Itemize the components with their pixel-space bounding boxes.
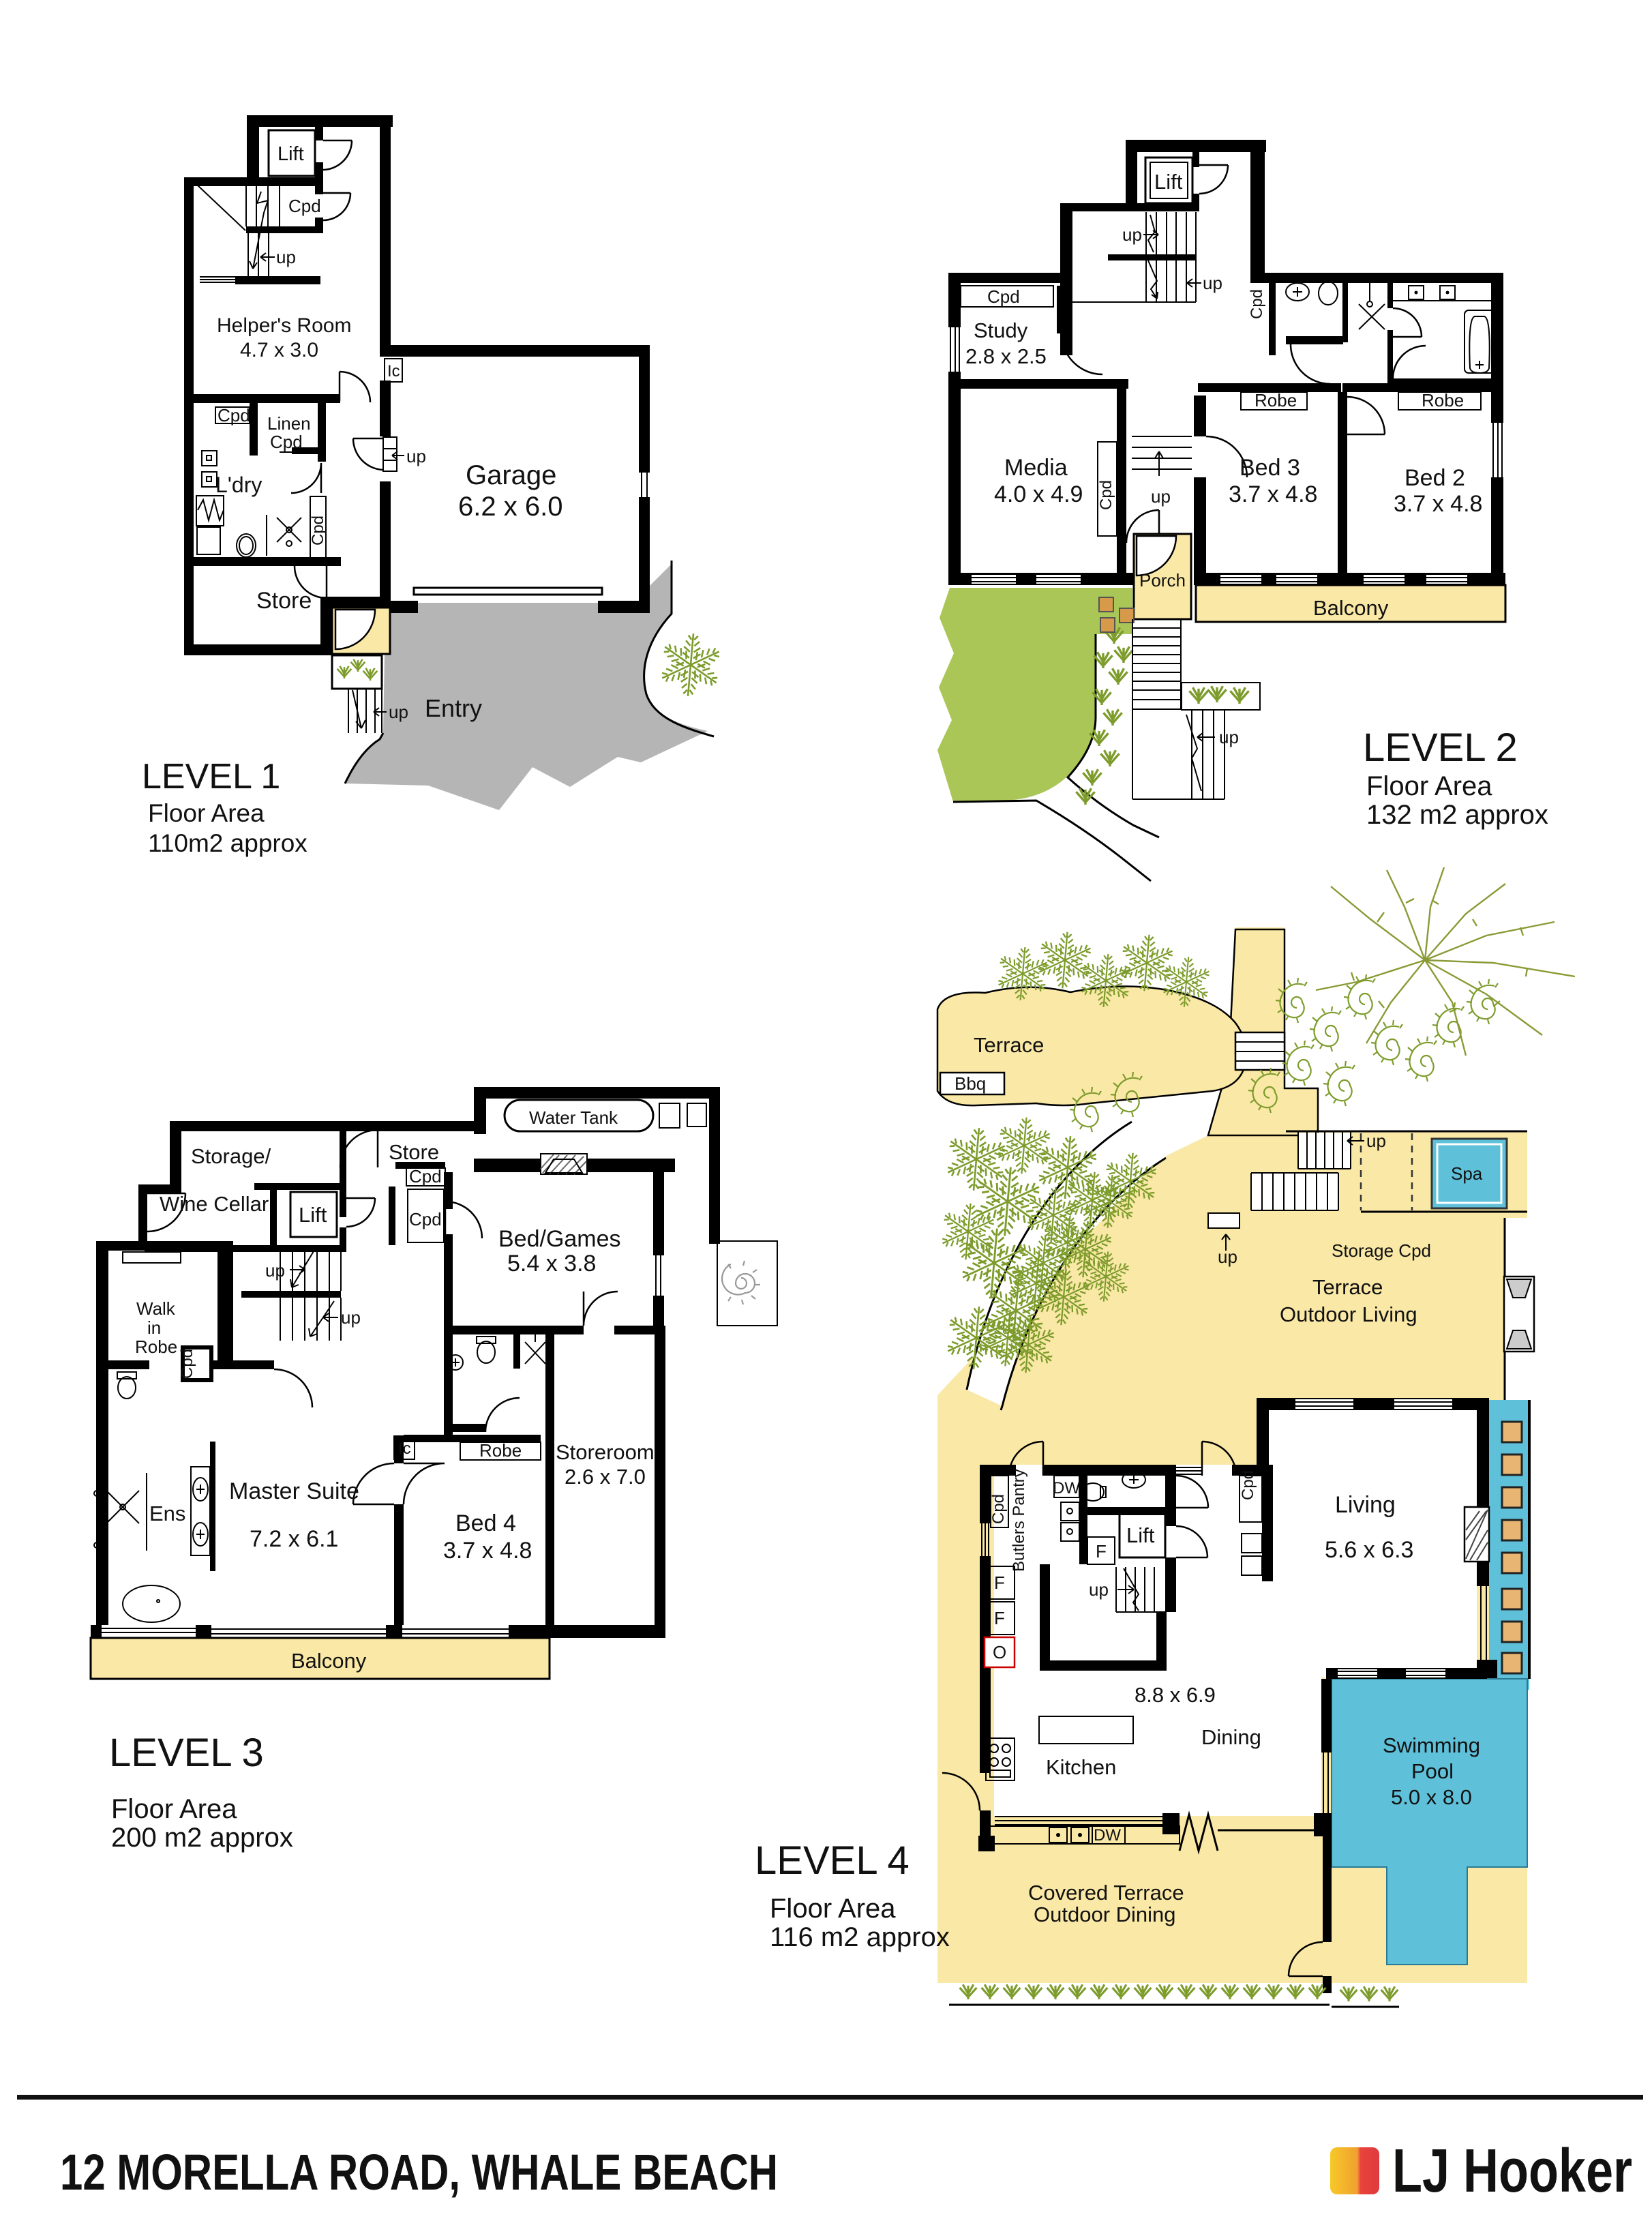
svg-text:4.7 x 3.0: 4.7 x 3.0 bbox=[240, 339, 318, 361]
svg-text:Outdoor Living: Outdoor Living bbox=[1280, 1302, 1417, 1326]
svg-text:Cpd: Cpd bbox=[409, 1166, 442, 1187]
svg-text:Bed 4: Bed 4 bbox=[455, 1510, 516, 1536]
svg-text:Ic: Ic bbox=[398, 1439, 411, 1458]
svg-text:Cpd: Cpd bbox=[1248, 289, 1266, 319]
svg-text:Robe: Robe bbox=[1255, 390, 1297, 411]
svg-text:Bed/Games: Bed/Games bbox=[498, 1226, 621, 1252]
svg-text:Master Suite: Master Suite bbox=[229, 1478, 359, 1504]
svg-text:up: up bbox=[1366, 1131, 1386, 1151]
svg-text:Bed 3: Bed 3 bbox=[1240, 455, 1300, 481]
svg-text:Robe: Robe bbox=[135, 1337, 177, 1357]
svg-text:2.6 x 7.0: 2.6 x 7.0 bbox=[565, 1465, 646, 1489]
svg-text:F: F bbox=[994, 1608, 1005, 1628]
svg-text:Lift: Lift bbox=[1154, 170, 1183, 194]
svg-text:Floor Area: Floor Area bbox=[770, 1894, 896, 1924]
svg-text:Media: Media bbox=[1004, 455, 1068, 481]
svg-text:Covered Terrace: Covered Terrace bbox=[1028, 1881, 1184, 1905]
svg-text:DW: DW bbox=[1094, 1826, 1121, 1845]
svg-text:Butlers Pantry: Butlers Pantry bbox=[1010, 1469, 1028, 1572]
svg-text:132 m2 approx: 132 m2 approx bbox=[1366, 800, 1548, 830]
svg-text:LEVEL 1: LEVEL 1 bbox=[142, 757, 280, 796]
svg-text:200 m2 approx: 200 m2 approx bbox=[111, 1823, 293, 1853]
svg-text:Balcony: Balcony bbox=[1313, 596, 1389, 620]
svg-text:Cpd: Cpd bbox=[1097, 480, 1115, 510]
svg-text:Living: Living bbox=[1335, 1492, 1396, 1518]
svg-text:Porch: Porch bbox=[1139, 570, 1186, 591]
svg-text:Dining: Dining bbox=[1201, 1725, 1261, 1749]
svg-text:3.7 x 4.8: 3.7 x 4.8 bbox=[443, 1538, 532, 1564]
svg-text:Cpd: Cpd bbox=[270, 432, 303, 452]
svg-text:Ens: Ens bbox=[149, 1502, 185, 1525]
svg-text:Water Tank: Water Tank bbox=[529, 1107, 618, 1128]
svg-text:up: up bbox=[1089, 1579, 1109, 1600]
svg-text:Storeroom: Storeroom bbox=[556, 1440, 655, 1464]
svg-text:Terrace: Terrace bbox=[974, 1033, 1044, 1057]
svg-text:Floor Area: Floor Area bbox=[111, 1794, 237, 1824]
svg-text:Storage Cpd: Storage Cpd bbox=[1332, 1240, 1431, 1261]
svg-text:Balcony: Balcony bbox=[291, 1649, 367, 1673]
svg-text:up: up bbox=[341, 1307, 361, 1328]
svg-text:Terrace: Terrace bbox=[1312, 1275, 1383, 1299]
svg-text:Bed 2: Bed 2 bbox=[1405, 465, 1465, 491]
svg-text:Lift: Lift bbox=[277, 143, 304, 165]
svg-text:Cpd: Cpd bbox=[987, 286, 1020, 307]
svg-text:up: up bbox=[265, 1260, 285, 1281]
svg-text:Spa: Spa bbox=[1451, 1163, 1483, 1184]
svg-text:up: up bbox=[1203, 273, 1222, 293]
svg-text:Pool: Pool bbox=[1411, 1759, 1454, 1783]
svg-text:Cpd: Cpd bbox=[409, 1209, 442, 1229]
svg-text:O: O bbox=[993, 1642, 1006, 1662]
svg-text:LEVEL 2: LEVEL 2 bbox=[1363, 726, 1518, 770]
svg-text:Floor Area: Floor Area bbox=[148, 799, 265, 827]
svg-text:3.7 x 4.8: 3.7 x 4.8 bbox=[1394, 491, 1482, 517]
svg-text:Floor Area: Floor Area bbox=[1366, 771, 1492, 801]
svg-text:3.7 x 4.8: 3.7 x 4.8 bbox=[1229, 481, 1317, 507]
svg-text:Bbq: Bbq bbox=[955, 1073, 986, 1094]
svg-text:LEVEL 3: LEVEL 3 bbox=[109, 1731, 264, 1775]
svg-text:LEVEL 4: LEVEL 4 bbox=[755, 1838, 910, 1883]
svg-text:Robe: Robe bbox=[479, 1440, 522, 1461]
svg-text:7.2 x 6.1: 7.2 x 6.1 bbox=[250, 1526, 338, 1552]
svg-text:Linen: Linen bbox=[267, 413, 311, 434]
svg-text:Walk: Walk bbox=[136, 1298, 176, 1319]
svg-text:up: up bbox=[1151, 486, 1171, 507]
svg-text:up: up bbox=[389, 702, 408, 722]
svg-text:Wine Cellar: Wine Cellar bbox=[160, 1192, 269, 1216]
svg-text:Store: Store bbox=[389, 1140, 439, 1164]
svg-text:Cpd: Cpd bbox=[217, 405, 250, 426]
svg-text:Ic: Ic bbox=[387, 362, 400, 381]
svg-text:4.0 x 4.9: 4.0 x 4.9 bbox=[994, 481, 1083, 507]
svg-text:2.8 x 2.5: 2.8 x 2.5 bbox=[965, 344, 1047, 368]
svg-text:Study: Study bbox=[974, 318, 1028, 342]
svg-text:5.4 x 3.8: 5.4 x 3.8 bbox=[507, 1251, 596, 1277]
svg-text:6.2 x 6.0: 6.2 x 6.0 bbox=[458, 492, 562, 522]
svg-text:Garage: Garage bbox=[466, 460, 556, 490]
svg-text:DW: DW bbox=[1053, 1479, 1080, 1497]
svg-text:LJ Hooker: LJ Hooker bbox=[1392, 2137, 1632, 2205]
svg-text:Cpd: Cpd bbox=[309, 516, 327, 546]
svg-text:in: in bbox=[147, 1317, 161, 1338]
svg-text:Cpd: Cpd bbox=[288, 196, 321, 216]
svg-text:Entry: Entry bbox=[425, 694, 482, 722]
svg-text:Outdoor Dining: Outdoor Dining bbox=[1034, 1903, 1176, 1926]
svg-text:Swimming: Swimming bbox=[1383, 1733, 1480, 1757]
svg-text:Cpd: Cpd bbox=[178, 1349, 196, 1379]
svg-text:Helper's Room: Helper's Room bbox=[217, 314, 351, 337]
svg-text:up: up bbox=[276, 247, 296, 267]
svg-text:up: up bbox=[1218, 1247, 1237, 1267]
svg-text:5.0 x 8.0: 5.0 x 8.0 bbox=[1391, 1785, 1472, 1809]
svg-text:12 MORELLA ROAD, WHALE BEACH: 12 MORELLA ROAD, WHALE BEACH bbox=[60, 2144, 778, 2200]
svg-text:Kitchen: Kitchen bbox=[1046, 1755, 1116, 1779]
svg-text:Robe: Robe bbox=[1422, 390, 1464, 411]
svg-text:110m2 approx: 110m2 approx bbox=[148, 829, 307, 857]
svg-text:5.6 x 6.3: 5.6 x 6.3 bbox=[1325, 1537, 1413, 1563]
svg-text:Cpd: Cpd bbox=[1239, 1470, 1257, 1500]
svg-text:up: up bbox=[1219, 727, 1239, 747]
svg-text:up: up bbox=[406, 446, 426, 466]
svg-text:up: up bbox=[1122, 224, 1142, 245]
svg-text:Lift: Lift bbox=[299, 1203, 327, 1227]
svg-text:Store: Store bbox=[256, 588, 312, 614]
svg-text:F: F bbox=[1096, 1541, 1107, 1562]
svg-text:L'dry: L'dry bbox=[215, 473, 262, 497]
svg-text:116 m2 approx: 116 m2 approx bbox=[770, 1922, 950, 1952]
svg-text:8.8 x 6.9: 8.8 x 6.9 bbox=[1135, 1683, 1216, 1707]
svg-text:F: F bbox=[994, 1572, 1005, 1593]
svg-text:Lift: Lift bbox=[1126, 1523, 1155, 1547]
svg-text:Storage/: Storage/ bbox=[191, 1144, 271, 1168]
svg-text:Cpd: Cpd bbox=[989, 1494, 1008, 1524]
